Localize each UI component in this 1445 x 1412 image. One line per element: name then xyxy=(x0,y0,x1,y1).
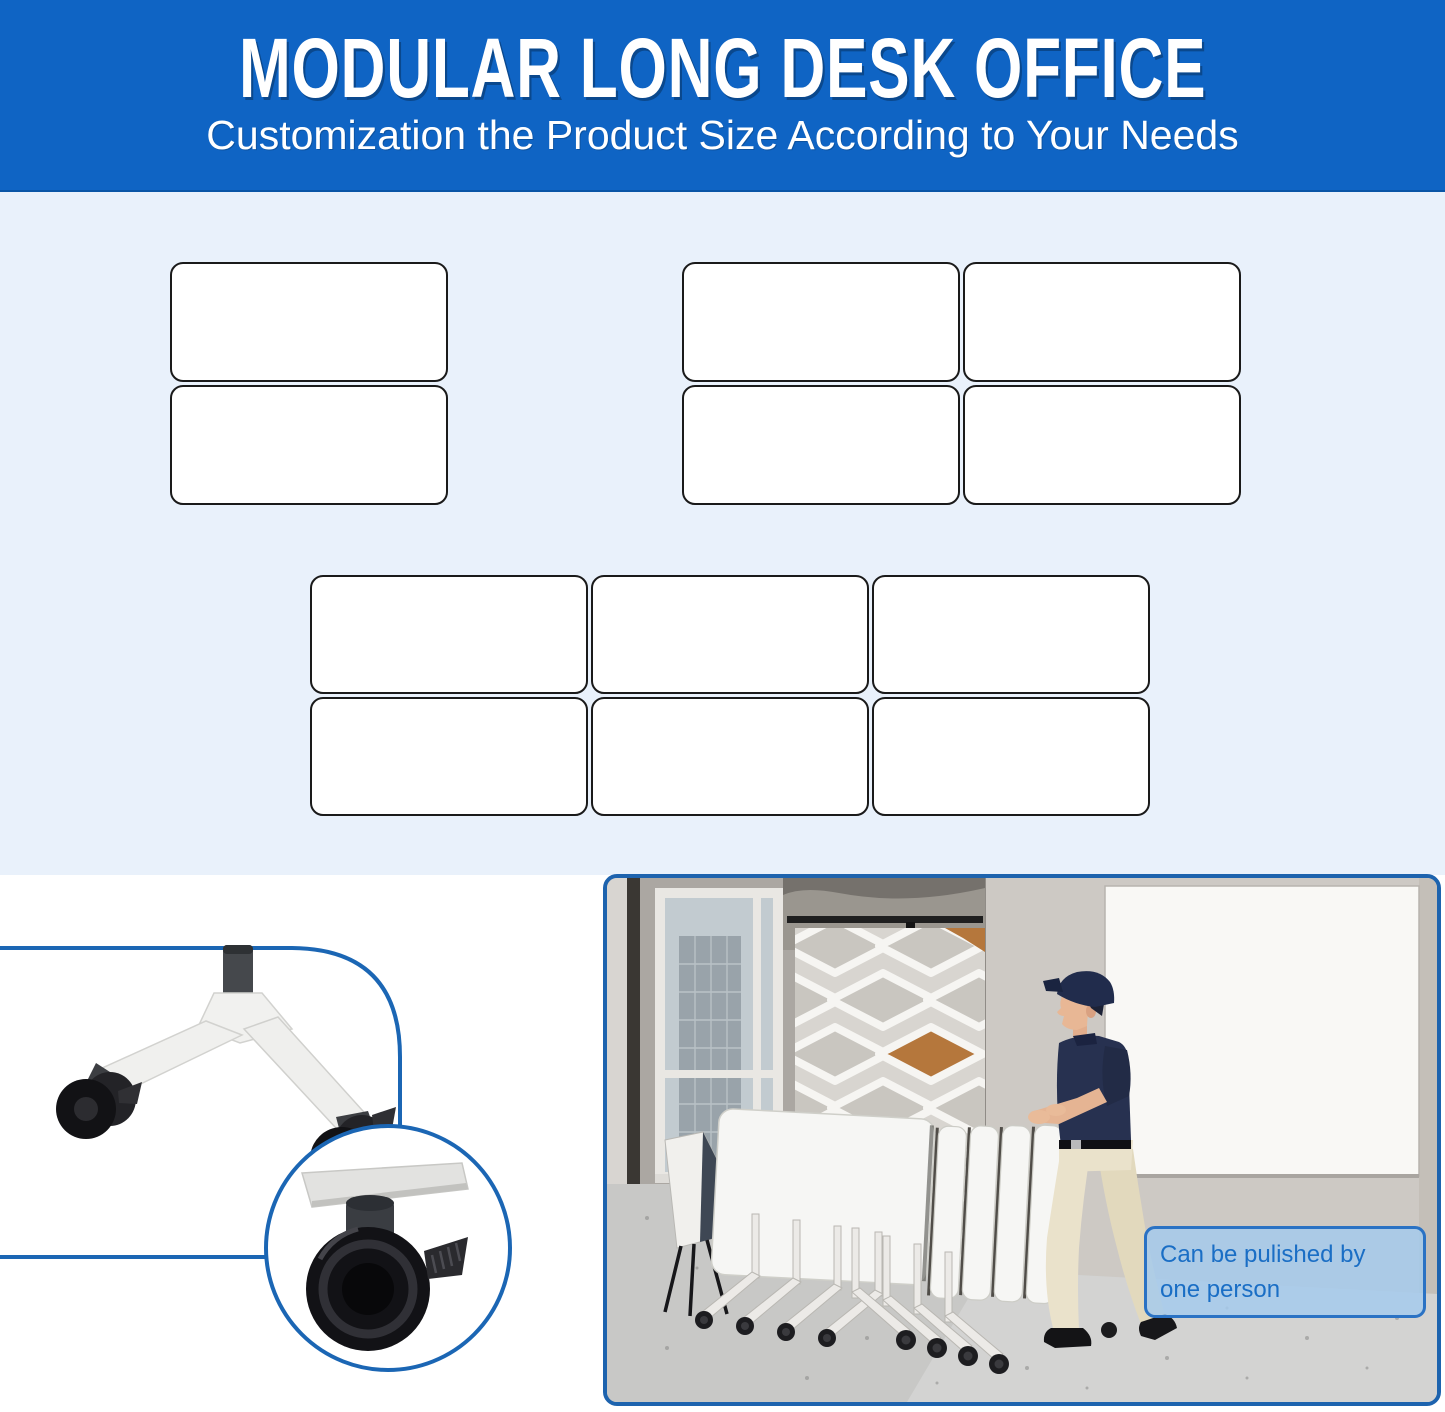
page-title: MODULAR LONG DESK OFFICE xyxy=(0,26,1445,110)
desk-panel xyxy=(682,385,960,505)
desk-layout-six xyxy=(310,575,1150,816)
office-photo xyxy=(607,878,1437,1402)
page-subtitle: Customization the Product Size According… xyxy=(0,112,1445,159)
header-banner: MODULAR LONG DESK OFFICE Customization t… xyxy=(0,0,1445,192)
desk-layout-two xyxy=(170,262,448,505)
whiteboard xyxy=(1105,886,1419,1178)
desk-panel xyxy=(872,697,1150,816)
desk-panel xyxy=(963,262,1241,382)
caster-detail-figure xyxy=(0,877,608,1412)
desk-panel xyxy=(310,575,588,694)
desk-panel xyxy=(872,575,1150,694)
desk-panel xyxy=(591,697,869,816)
photo-panel: Can be pulished by one person xyxy=(603,874,1441,1406)
caster-zoom-callout xyxy=(266,1126,510,1370)
bottom-section: Can be pulished by one person xyxy=(0,877,1445,1412)
caption-box: Can be pulished by one person xyxy=(1144,1226,1426,1318)
desk-panel xyxy=(963,385,1241,505)
caption-text: Can be pulished by one person xyxy=(1160,1241,1365,1303)
desk-panel xyxy=(682,262,960,382)
desk-panel xyxy=(170,262,448,382)
desk-panel xyxy=(170,385,448,505)
desk-panel xyxy=(591,575,869,694)
desk-panel xyxy=(310,697,588,816)
desk-layout-four xyxy=(682,262,1241,505)
product-infographic: MODULAR LONG DESK OFFICE Customization t… xyxy=(0,0,1445,1412)
size-options-section xyxy=(0,192,1445,875)
door-frame xyxy=(627,878,640,1190)
desk-leg-illustration xyxy=(0,877,608,1412)
